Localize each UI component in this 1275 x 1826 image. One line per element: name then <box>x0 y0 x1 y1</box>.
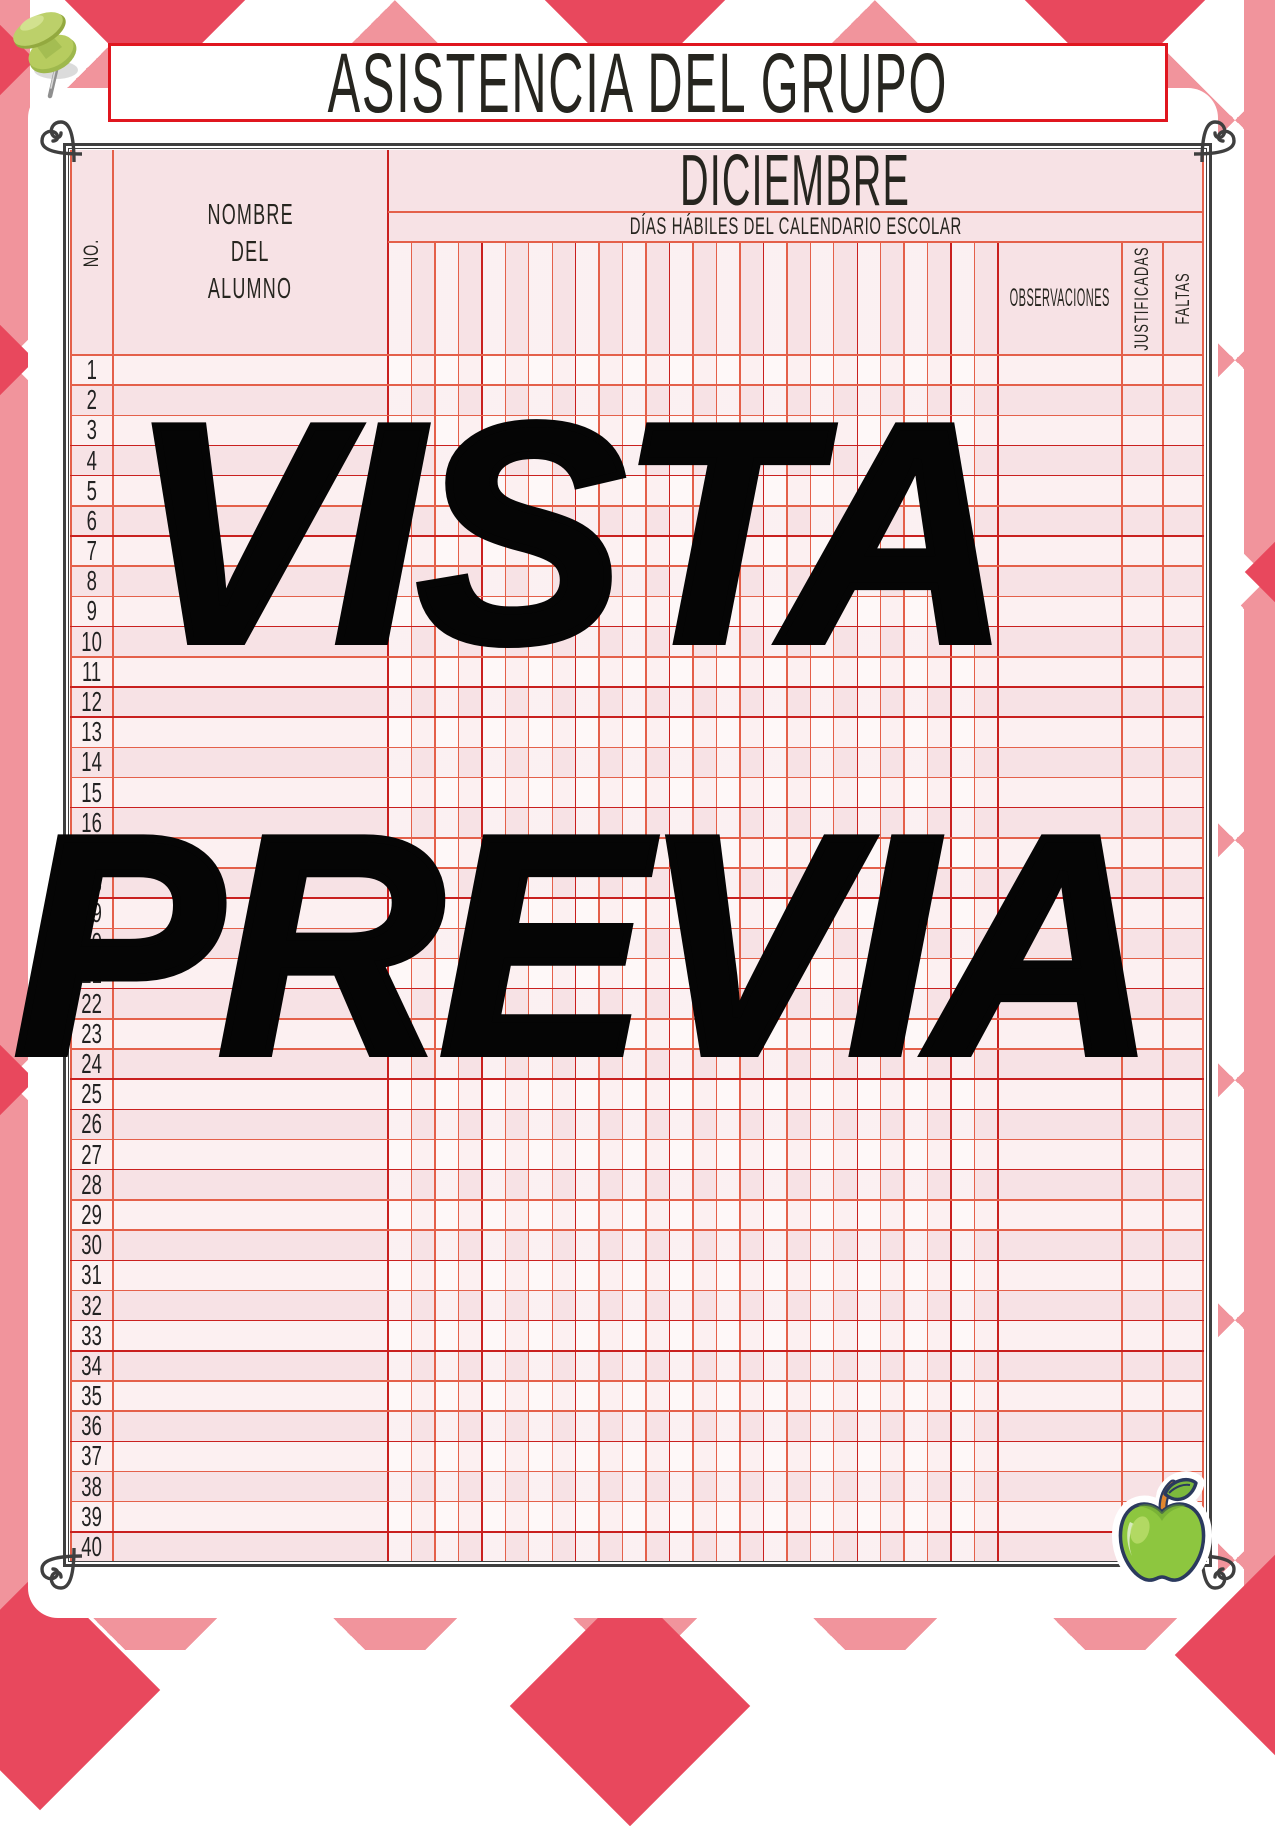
row-number: 3 <box>70 415 113 445</box>
row-number: 2 <box>70 385 113 415</box>
row-number: 11 <box>70 657 113 687</box>
row-number: 28 <box>70 1170 113 1200</box>
row-number: 32 <box>70 1290 113 1320</box>
watermark-vista: VISTA <box>130 378 1006 690</box>
row-number: 9 <box>70 596 113 626</box>
row-number: 1 <box>70 355 113 385</box>
frame-corner-curl <box>30 1548 82 1600</box>
row-number: 7 <box>70 536 113 566</box>
row-number: 31 <box>70 1260 113 1290</box>
row-number: 33 <box>70 1321 113 1351</box>
row-number: 36 <box>70 1411 113 1441</box>
column-header-justified: JUSTIFICADAS <box>1122 242 1163 355</box>
row-number: 13 <box>70 717 113 747</box>
row-number: 10 <box>70 627 113 657</box>
row-number: 34 <box>70 1351 113 1381</box>
apple-icon <box>1096 1464 1228 1606</box>
column-header-absences: FALTAS <box>1163 242 1204 355</box>
pushpin-icon <box>4 6 98 110</box>
row-number: 8 <box>70 566 113 596</box>
no-label: NO. <box>81 238 102 266</box>
row-number: 5 <box>70 476 113 506</box>
school-days-subheader: DÍAS HÁBILES DEL CALENDARIO ESCOLAR <box>388 212 1203 242</box>
row-number: 39 <box>70 1502 113 1532</box>
row-number: 35 <box>70 1381 113 1411</box>
month-header: DICIEMBRE <box>388 152 1203 210</box>
row-number: 29 <box>70 1200 113 1230</box>
frame-corner-curl <box>1194 110 1246 162</box>
page-title: ASISTENCIA DEL GRUPO <box>328 41 948 125</box>
column-header-observations: OBSERVACIONES <box>998 242 1122 355</box>
right-pattern-band <box>1244 0 1275 1650</box>
row-number: 4 <box>70 446 113 476</box>
column-header-student-name: NOMBRE DEL ALUMNO <box>113 150 388 355</box>
title-banner: ASISTENCIA DEL GRUPO <box>108 43 1168 122</box>
watermark-previa: PREVIA <box>14 790 1152 1102</box>
frame-corner-curl <box>30 110 82 162</box>
row-number: 12 <box>70 687 113 717</box>
row-number: 30 <box>70 1230 113 1260</box>
row-number: 27 <box>70 1140 113 1170</box>
row-number: 37 <box>70 1441 113 1471</box>
row-number: 6 <box>70 506 113 536</box>
column-header-no: NO. <box>70 150 113 355</box>
row-number: 38 <box>70 1471 113 1501</box>
